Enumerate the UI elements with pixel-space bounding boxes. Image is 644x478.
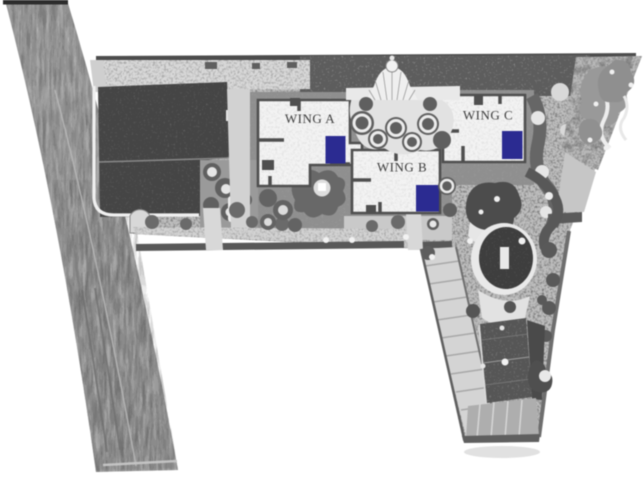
svg-text:WING C: WING C [463,108,513,123]
svg-text:WING B: WING B [377,160,427,175]
svg-text:WING A: WING A [285,111,335,126]
